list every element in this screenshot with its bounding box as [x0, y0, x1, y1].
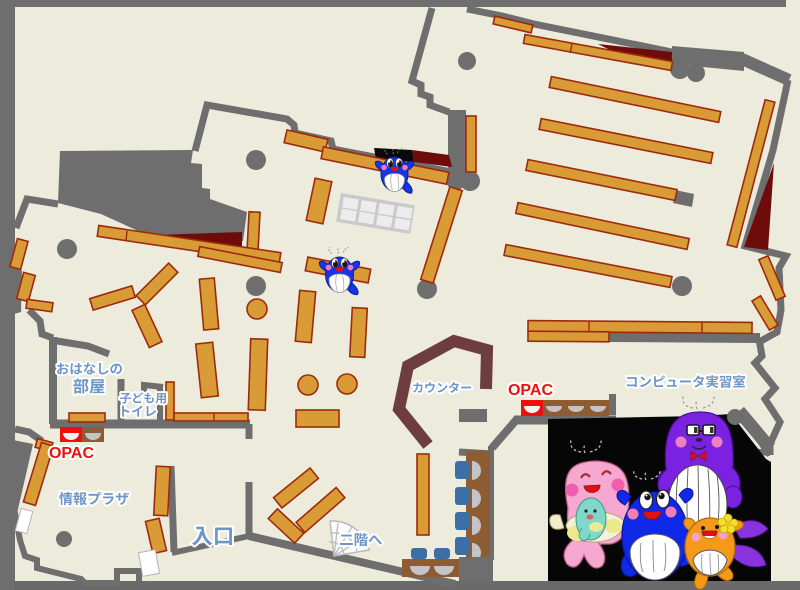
- svg-text:OPAC: OPAC: [508, 382, 553, 399]
- svg-text:OPAC: OPAC: [49, 445, 94, 462]
